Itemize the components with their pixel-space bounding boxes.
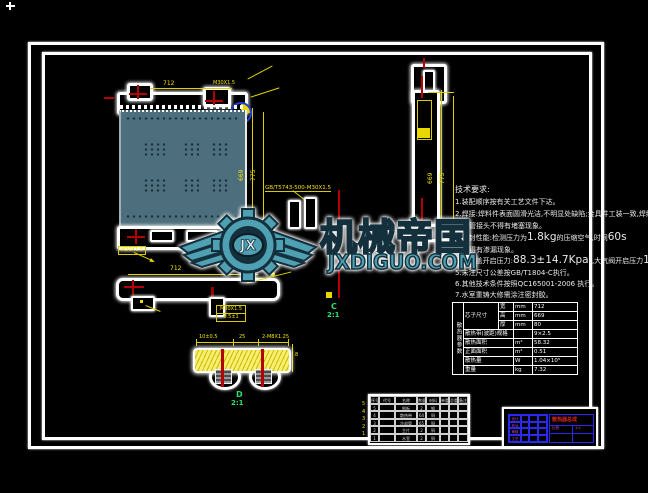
section-label-d: D: [236, 390, 243, 399]
table-row: 散热带(波距)规格 9×2.5: [453, 330, 578, 339]
table-cell: 散热量: [464, 357, 514, 366]
bom-row-number: 2: [362, 424, 365, 430]
inlet-stub: [203, 87, 231, 107]
bolt-dot: [140, 300, 143, 303]
core-dot-cluster: [183, 178, 199, 194]
dim-label: M30X1.5: [213, 80, 235, 86]
bom-cell: 2: [417, 434, 426, 442]
scale-value: 1:2: [575, 426, 581, 430]
dim-label: 712: [163, 81, 174, 87]
bom-cell: [440, 419, 449, 427]
table-cell: [514, 330, 533, 339]
bom-cell: 数量: [417, 396, 426, 404]
dim-label: 775: [440, 173, 446, 184]
table-cell: 712: [533, 303, 578, 312]
table-cell: 芯子尺寸: [464, 303, 499, 330]
table-cell: W: [514, 357, 533, 366]
title-block-cell: [521, 435, 529, 442]
dim-tick: [196, 339, 197, 346]
bom-cell: [379, 434, 395, 442]
core-dot-cluster: [211, 142, 229, 158]
table-cell: 1.04×10⁵: [533, 357, 578, 366]
tech-req-line: 4.水口盖开启压力:88.3±14.7Kpa.,大气阀开启压力1.98-11.7…: [455, 256, 648, 265]
bom-cell: [379, 404, 395, 412]
tech-req-line: 2.焊接:焊料件表面圆滑光洁,不明显处缺陷;金具件工装一致,焊缝均匀;: [455, 210, 648, 218]
title-block-cell: 校对: [509, 422, 521, 429]
table-cell: 9×2.5: [533, 330, 578, 339]
bom-cell: [440, 404, 449, 412]
bom-cell: 5: [370, 404, 379, 412]
table-cell: mm: [514, 303, 533, 312]
bom-cell: 材料: [426, 396, 440, 404]
dim-label: 775: [251, 170, 257, 181]
tech-vac-pressure: 1.98-11.76Kpa: [643, 254, 648, 266]
section-scale-d: 2:1: [231, 399, 244, 407]
table-cell: 58.32: [533, 339, 578, 348]
dim-label: 669: [428, 173, 434, 184]
title-block-cell: [538, 415, 547, 422]
bom-cell: [458, 426, 468, 434]
core-dot-row: [125, 116, 239, 121]
bom-cell: 3: [370, 419, 379, 427]
table-cell: 宽: [499, 303, 514, 312]
bom-cell: [379, 419, 395, 427]
core-dot-cluster: [143, 142, 165, 158]
bom-cell: [449, 404, 458, 412]
tech-open-pressure: 88.3±14.7Kpa.: [513, 254, 592, 266]
table-row: 正面面积 m² 0.51: [453, 348, 578, 357]
dim-label: 25: [239, 334, 245, 340]
scale-label: 比例: [552, 426, 559, 431]
dim-tick: [288, 339, 289, 346]
bom-cell: [440, 434, 449, 442]
section-cut-mark: [326, 292, 332, 298]
title-block-cell: 审核: [509, 428, 521, 435]
table-cell: m²: [514, 348, 533, 357]
title-block-cell: [521, 415, 529, 422]
title-block-name-panel: 散热器总成 比例 1:2: [549, 414, 594, 443]
bom-cell: [379, 426, 395, 434]
bom-cell: [379, 411, 395, 419]
table-side-header: 散热器参数: [453, 303, 464, 375]
detail-hatched-bar: [193, 348, 291, 373]
title-block-cell: [538, 422, 547, 429]
bom-row-number: 1: [362, 431, 365, 437]
bom-cell: 2: [370, 426, 379, 434]
table-cell: 669: [533, 312, 578, 321]
table-cell: 厚: [499, 321, 514, 330]
tech-req-line: 7.水室重铸大修需涂注密封胶。: [455, 291, 553, 299]
bom-cell: 2: [417, 404, 426, 412]
title-block-signature-grid: 设计校对审核工艺: [508, 414, 548, 443]
winged-gear-logo: JX: [178, 205, 318, 285]
bom-cell: 序号: [370, 396, 379, 404]
bom-cell: 钢: [426, 404, 440, 412]
dim-line: [150, 88, 232, 89]
bom-row-number: 4: [362, 409, 365, 415]
bom-cell: 水室: [395, 434, 417, 442]
centerline: [423, 58, 425, 68]
bom-table: 序号代号名称数量材料单重总重备注5侧板2钢4散热带64铜3冷却管65铜2主片2铜…: [368, 394, 470, 445]
table-cell: 散热带(波距)规格: [464, 330, 514, 339]
bom-cell: [458, 411, 468, 419]
table-cell: mm: [514, 312, 533, 321]
title-block-cell: [529, 422, 538, 429]
stud-label-line2: 8.5±1: [216, 313, 246, 322]
bom-cell: [458, 404, 468, 412]
bom-row-number: 3: [362, 416, 365, 422]
drawing-name: 散热器总成: [552, 416, 577, 423]
title-block-cell: [529, 428, 538, 435]
bom-cell: [440, 426, 449, 434]
dim-tick: [258, 339, 259, 346]
table-cell: m²: [514, 339, 533, 348]
bom-cell: 铜: [426, 419, 440, 427]
dim-tick: [233, 339, 234, 346]
detail-stud: [261, 349, 264, 387]
tech-req-title: 技术要求:: [455, 186, 490, 194]
bom-cell: 65: [417, 419, 426, 427]
detail-stud: [221, 349, 224, 387]
thread-spec-leader-label: GB/T5743-500-M30X1.5: [265, 185, 331, 192]
title-block-cell: [521, 422, 529, 429]
table-cell: mm: [514, 321, 533, 330]
dim-line: [196, 342, 288, 343]
bom-cell: [449, 419, 458, 427]
centerline: [132, 280, 134, 295]
title-block-cell: [538, 428, 547, 435]
bom-row-number: 5: [362, 401, 365, 407]
svg-text:JX: JX: [239, 238, 256, 254]
table-cell: 高: [499, 312, 514, 321]
drain-label: M30X1.5: [118, 246, 146, 255]
dim-line: [292, 344, 293, 372]
bom-cell: 备注: [458, 396, 468, 404]
bom-cell: [440, 411, 449, 419]
dim-label: 2-M8X1.25: [262, 334, 289, 340]
title-block-vline: [572, 425, 573, 442]
title-block-cell: [521, 428, 529, 435]
table-cell: 7.32: [533, 366, 578, 375]
bom-cell: 铜: [426, 426, 440, 434]
section-scale-c: 2:1: [327, 311, 340, 319]
bom-cell: [458, 419, 468, 427]
table-cell: 0.51: [533, 348, 578, 357]
side-view-channel-fill: [417, 128, 430, 138]
bom-cell: 侧板: [395, 404, 417, 412]
tech-req-line: 3.密封性能:检测压力为1.8kg的压缩空气,时间60s: [455, 233, 627, 242]
bom-cell: 代号: [379, 396, 395, 404]
title-block-cell: [538, 435, 547, 442]
table-cell: 散热面积: [464, 339, 514, 348]
core-fin-row: [120, 105, 244, 109]
bom-cell: 铜: [426, 434, 440, 442]
dim-label: 669: [239, 170, 245, 181]
filler-neck: [127, 83, 153, 101]
bom-cell: 64: [417, 411, 426, 419]
table-cell: 重量: [464, 366, 514, 375]
bom-cell: 冷却管: [395, 419, 417, 427]
table-row: 重量 kg 7.32: [453, 366, 578, 375]
core-dot-cluster: [183, 142, 199, 158]
centerline-tick: [104, 97, 114, 99]
bom-cell: [449, 434, 458, 442]
title-block-cell: [529, 435, 538, 442]
bom-cell: 4: [370, 411, 379, 419]
table-cell: kg: [514, 366, 533, 375]
table-row: 散热量 W 1.04×10⁵: [453, 357, 578, 366]
dim-extension: [428, 92, 454, 93]
tech-text: ,大气阀开启压力: [592, 257, 643, 265]
bom-cell: 名称: [395, 396, 417, 404]
centerline: [421, 76, 423, 98]
watermark: JX 机械帝国 JXDIGUO.COM: [178, 205, 478, 285]
bom-cell: 2: [417, 426, 426, 434]
centerline: [137, 85, 139, 99]
bottom-tank-detail: [150, 230, 174, 242]
core-dot-cluster: [143, 178, 165, 194]
centerline: [124, 286, 144, 288]
bom-cell: 主片: [395, 426, 417, 434]
title-block-cell: 工艺: [509, 435, 521, 442]
tech-text: 的压缩空气,时间: [557, 234, 608, 242]
watermark-domain-text: JXDIGUO.COM: [328, 250, 477, 274]
centerline: [135, 229, 137, 244]
table-row: 散热器参数 芯子尺寸 宽 mm 712: [453, 303, 578, 312]
table-cell: 正面面积: [464, 348, 514, 357]
bom-cell: 单重: [440, 396, 449, 404]
centerline: [213, 91, 215, 105]
dim-label: 10±0.5: [199, 334, 218, 340]
tech-time-value: 60s: [608, 231, 627, 243]
title-block: 设计校对审核工艺 散热器总成 比例 1:2: [502, 407, 598, 448]
table-row: 散热面积 m² 58.32: [453, 339, 578, 348]
title-block-cell: 设计: [509, 415, 521, 422]
tech-pressure-value: 1.8kg: [527, 231, 556, 243]
bom-cell: [449, 426, 458, 434]
core-dot-cluster: [211, 178, 229, 194]
parameter-table: 散热器参数 芯子尺寸 宽 mm 712 高 mm 669 厚 mm 80 散热带…: [452, 302, 578, 375]
crosshair-artifact: [9, 2, 11, 10]
gear-icon: JX: [212, 209, 284, 281]
table-cell: 80: [533, 321, 578, 330]
cad-drawing-canvas: 712 M30X1.5 M30X1.5 669 775 GB/T5743-500…: [0, 0, 648, 493]
bom-cell: 1: [370, 434, 379, 442]
bom-cell: 总重: [449, 396, 458, 404]
bom-cell: 铜: [426, 411, 440, 419]
title-block-cell: [529, 415, 538, 422]
section-label-c: C: [331, 302, 337, 311]
bom-cell: [449, 411, 458, 419]
dim-label: 8: [295, 352, 298, 358]
bom-cell: 散热带: [395, 411, 417, 419]
bom-cell: [458, 434, 468, 442]
